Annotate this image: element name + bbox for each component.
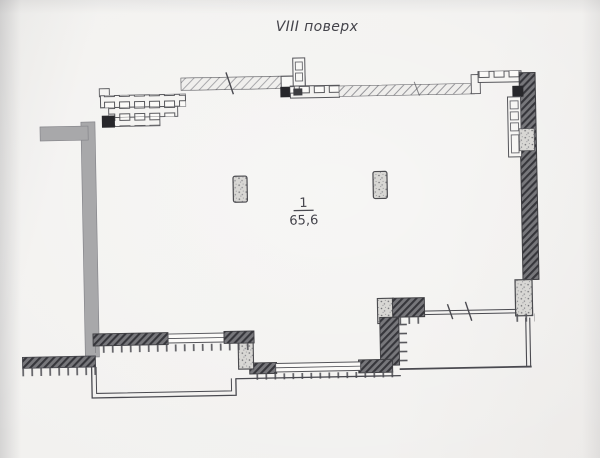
column-marker <box>102 116 115 128</box>
right-exterior-wall <box>507 72 540 321</box>
left-party-wall <box>16 122 100 376</box>
hatched-wall <box>93 333 168 346</box>
top-left-wall <box>99 87 186 128</box>
top-wall-left-span <box>181 71 295 95</box>
party-wall-vertical <box>81 122 100 357</box>
room-area: 65,6 <box>289 213 318 229</box>
wall-band-blocks <box>109 117 160 127</box>
joint-ticks-vertical <box>399 317 408 366</box>
scanned-floor-plan-photo: 1 65,6 VIII поверх <box>0 0 600 458</box>
wall-band-blocks <box>100 94 185 108</box>
stipple-pier <box>519 128 534 150</box>
joint-ticks <box>21 367 100 377</box>
railing-tick <box>465 302 471 321</box>
bottom-right-l-wall <box>357 298 425 373</box>
balcony-inner-edge <box>96 364 231 393</box>
bottom-middle-wall <box>235 329 401 380</box>
wall-band-hatch <box>181 76 295 90</box>
hatched-wall <box>519 72 539 279</box>
hatched-wall <box>392 298 424 318</box>
balcony-bottom-edge <box>400 367 532 370</box>
wall-band-blocks <box>478 71 521 83</box>
joint-ticks <box>513 314 535 322</box>
column-right <box>373 171 388 198</box>
balcony-right-edge <box>526 318 531 367</box>
plan-group: 1 65,6 <box>15 53 541 399</box>
column-marker <box>512 86 523 97</box>
party-wall-arm-bottom <box>22 356 95 368</box>
bottom-left-wall <box>93 331 254 353</box>
hatched-wall <box>224 331 254 344</box>
wall-band-blocks <box>109 106 178 117</box>
party-wall-arm-top <box>40 126 88 141</box>
stipple-pier <box>515 280 533 316</box>
floor-title: VIII поверх <box>276 19 359 35</box>
floor-plan-svg: 1 65,6 VIII поверх <box>0 0 600 458</box>
bottom-left-balcony <box>92 364 237 398</box>
column-left <box>233 176 247 202</box>
room-label: 1 65,6 <box>289 196 319 229</box>
hatched-wall <box>380 317 400 365</box>
column-marker <box>280 87 291 98</box>
wall-block-dark <box>293 88 302 95</box>
room-number: 1 <box>299 196 308 211</box>
railing-tick <box>447 304 452 319</box>
top-wall-right-span <box>290 71 521 98</box>
hatched-wall <box>359 359 393 373</box>
